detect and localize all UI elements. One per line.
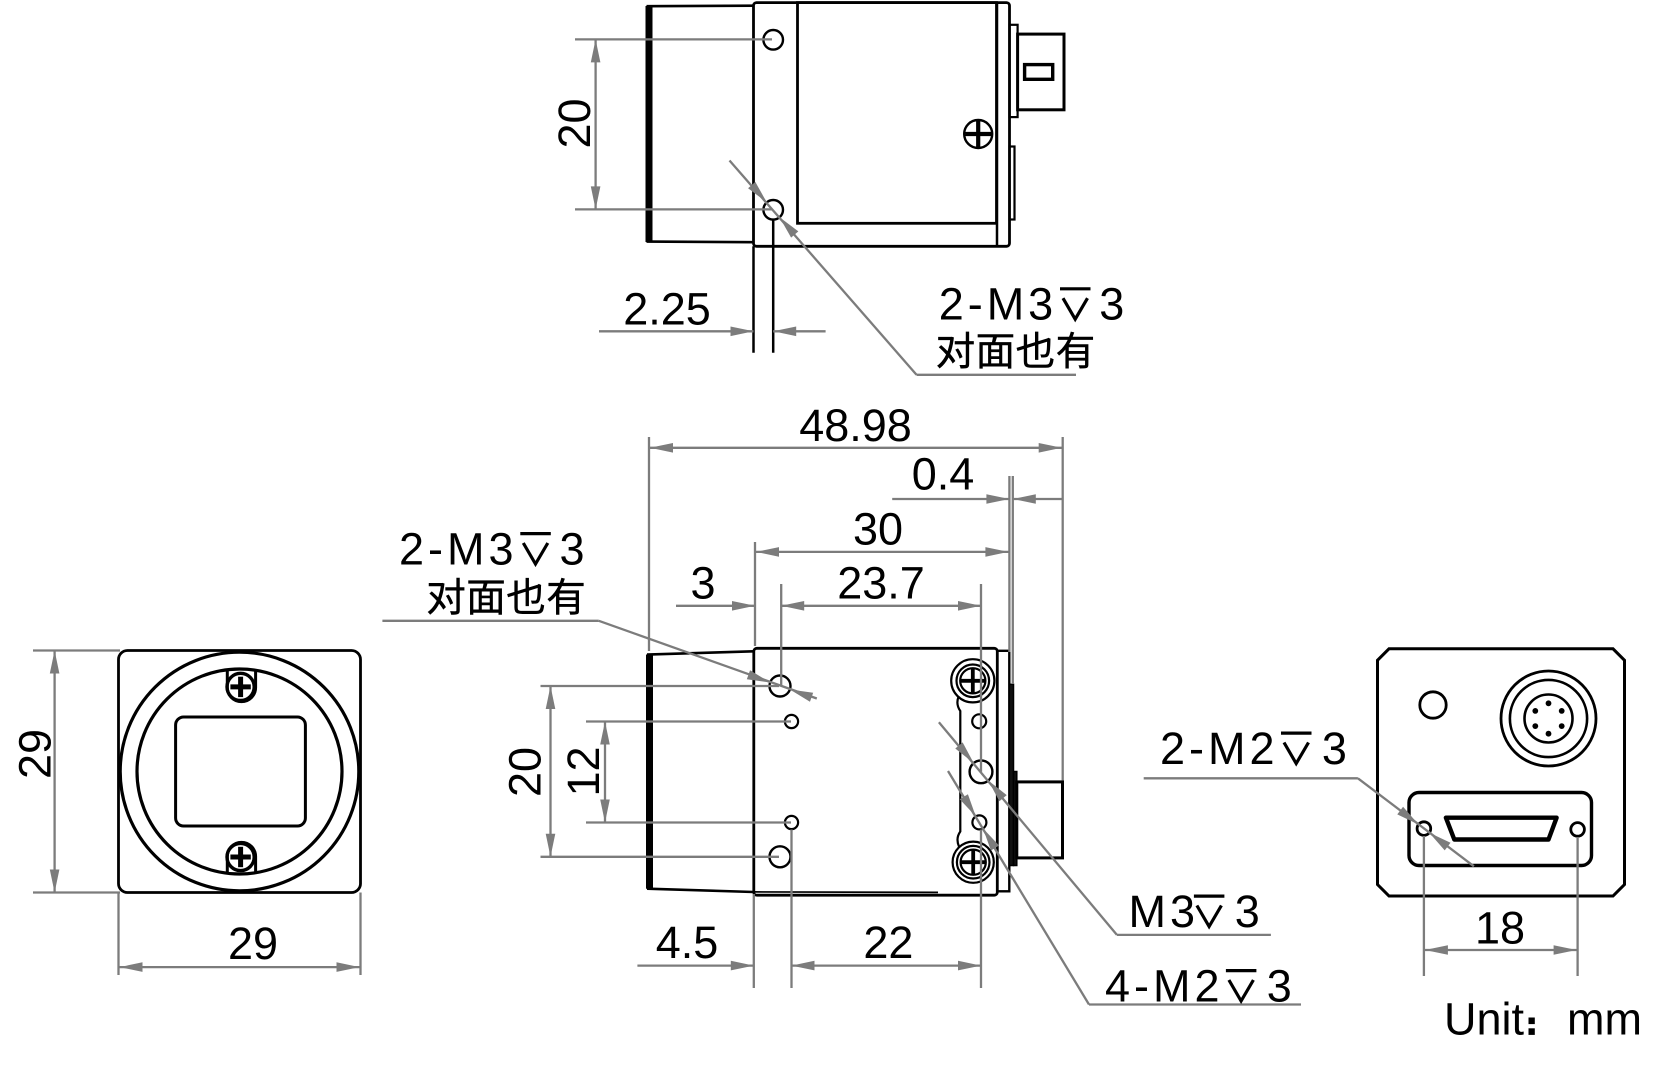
svg-text:2.25: 2.25 — [623, 284, 711, 335]
svg-text:3: 3 — [1235, 886, 1260, 937]
svg-text:0.4: 0.4 — [912, 449, 975, 500]
svg-text:3: 3 — [1267, 961, 1292, 1012]
svg-text:30: 30 — [853, 504, 903, 555]
svg-text:23.7: 23.7 — [837, 558, 925, 609]
svg-text:20: 20 — [549, 98, 600, 148]
svg-text:4-M2: 4-M2 — [1105, 961, 1224, 1012]
svg-text:Unit: Unit — [1444, 994, 1525, 1045]
svg-text:M3: M3 — [1129, 886, 1200, 937]
svg-text:29: 29 — [228, 918, 278, 969]
svg-text:22: 22 — [863, 917, 913, 968]
svg-text:3: 3 — [560, 524, 585, 575]
svg-text:2-M3: 2-M3 — [939, 279, 1058, 330]
svg-text:3: 3 — [690, 558, 715, 609]
svg-text:2-M2: 2-M2 — [1160, 723, 1279, 774]
svg-text:3: 3 — [1099, 279, 1124, 330]
svg-text:29: 29 — [9, 729, 60, 779]
svg-text:20: 20 — [500, 747, 551, 797]
svg-text:3: 3 — [1322, 723, 1347, 774]
svg-text:48.98: 48.98 — [799, 400, 912, 451]
svg-text:18: 18 — [1475, 903, 1525, 954]
svg-text:2-M3: 2-M3 — [399, 524, 518, 575]
svg-text:mm: mm — [1567, 994, 1642, 1045]
svg-text:12: 12 — [558, 746, 609, 796]
svg-text:4.5: 4.5 — [656, 917, 719, 968]
